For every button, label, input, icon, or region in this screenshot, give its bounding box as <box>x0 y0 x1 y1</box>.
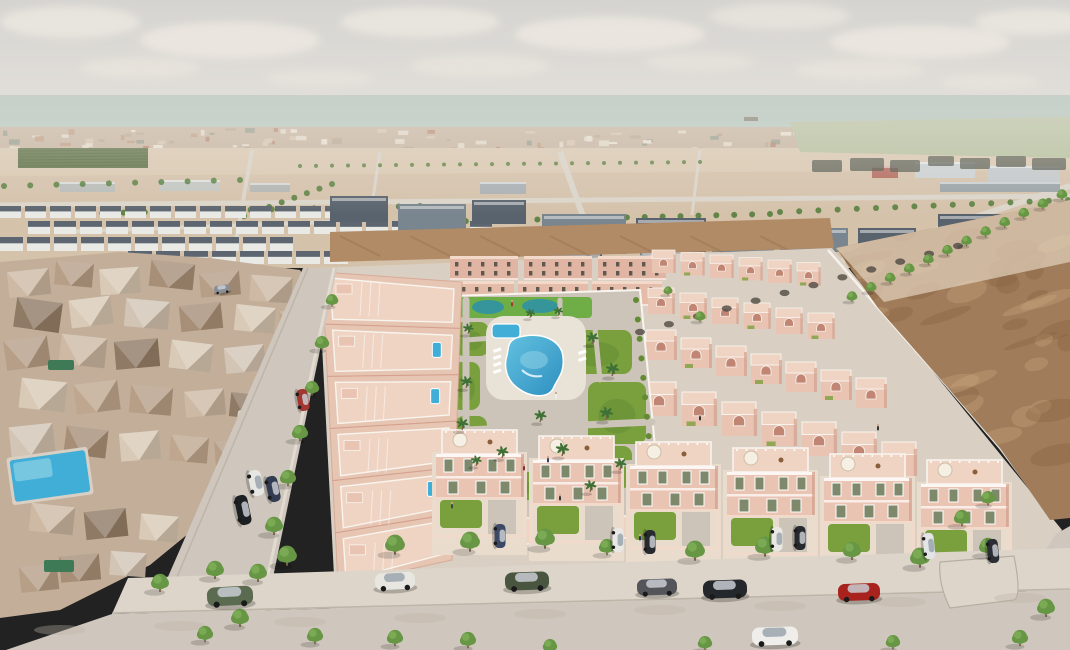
side-shadow <box>521 454 524 498</box>
person-head <box>451 502 453 504</box>
apartment-roof-line <box>544 216 624 219</box>
tree-highlight <box>462 633 470 641</box>
villa-unit <box>681 253 705 276</box>
villa-arch <box>747 267 755 274</box>
villa-side-shadow <box>789 265 791 283</box>
window <box>500 481 510 494</box>
tree-highlight <box>388 536 397 545</box>
window <box>464 459 473 472</box>
apartment-block <box>524 256 592 280</box>
townhouse-roof <box>28 221 50 227</box>
railing-post <box>890 455 892 457</box>
villa-unit <box>682 392 717 426</box>
car <box>749 626 800 650</box>
apartment-window <box>468 271 471 276</box>
window <box>888 505 898 518</box>
palm-shadow <box>596 421 609 425</box>
railing-post <box>959 461 961 463</box>
railing-post <box>968 461 970 463</box>
villa-arch <box>718 264 726 271</box>
car-glass <box>762 627 786 637</box>
side-shadow <box>1006 484 1009 528</box>
car-wheel <box>771 544 775 548</box>
apartment-window <box>568 271 571 276</box>
car-glass <box>384 573 405 583</box>
villa-roof <box>786 362 816 373</box>
rock <box>895 258 905 264</box>
villa-arch <box>693 406 704 416</box>
tree-highlight <box>956 511 964 519</box>
tree-shadow <box>842 301 855 305</box>
village-house <box>168 340 213 373</box>
tree-highlight <box>267 518 275 526</box>
village-house <box>129 384 173 416</box>
palm-shadow <box>551 316 560 319</box>
window <box>933 511 943 524</box>
townhouse-roof <box>81 237 104 243</box>
tree-highlight <box>758 538 767 547</box>
villa-side-shadow <box>768 308 771 329</box>
townhouse-roof <box>189 237 212 243</box>
townhouse-roof <box>106 221 128 227</box>
villa-side-shadow <box>709 344 712 368</box>
villa-arch <box>689 303 698 311</box>
townhouse-roof <box>184 221 206 227</box>
villa-unit <box>821 370 852 400</box>
villa-roof <box>856 378 886 389</box>
railing-post <box>793 449 795 451</box>
cornice <box>824 478 911 481</box>
villa-unit <box>646 330 677 360</box>
car <box>373 571 418 594</box>
apartment-window <box>507 271 510 276</box>
railing-post <box>900 455 902 457</box>
window <box>658 471 667 484</box>
green-roof <box>48 360 74 370</box>
cloud <box>515 17 705 51</box>
villa-yard <box>800 282 806 285</box>
tree-highlight <box>1020 209 1025 214</box>
tree-highlight <box>208 562 216 570</box>
person-head <box>555 392 557 394</box>
tree-highlight <box>538 530 547 539</box>
railing-post <box>871 455 873 457</box>
sky-layer <box>0 0 1070 104</box>
window <box>876 483 885 496</box>
villa-side-shadow <box>736 303 739 324</box>
villa-side-shadow <box>818 267 820 285</box>
stair-bulkhead <box>339 336 355 346</box>
cloud <box>940 74 1040 90</box>
railing-post <box>862 455 864 457</box>
villa-roof <box>682 392 716 404</box>
front-villa <box>723 448 818 573</box>
railing-post <box>997 461 999 463</box>
tree-highlight <box>700 637 707 644</box>
railing-post <box>590 437 592 439</box>
stair-bulkhead <box>349 545 365 555</box>
palm-shadow <box>457 388 468 392</box>
cornice <box>921 484 1008 487</box>
window <box>603 465 612 478</box>
roof-pool <box>431 389 440 404</box>
hedge <box>640 375 646 381</box>
railing-post <box>930 461 932 463</box>
apartment-window <box>629 271 632 276</box>
villa-side-shadow <box>672 293 675 314</box>
terrace-table <box>779 458 784 463</box>
villa-arch <box>660 259 668 266</box>
railing-post <box>552 437 554 439</box>
railing-post <box>599 437 601 439</box>
apartment-window <box>475 287 478 292</box>
villa-side-shadow <box>814 368 817 392</box>
playground-pad <box>522 299 558 313</box>
tree-highlight <box>982 227 987 232</box>
tree-shadow <box>995 226 1008 230</box>
car <box>492 523 506 549</box>
terrace-table <box>876 464 881 469</box>
villa-yard <box>687 421 696 426</box>
townhouse-roof <box>108 237 131 243</box>
railing-post <box>445 431 447 433</box>
villa-side-shadow <box>849 376 852 400</box>
apartment-window <box>507 262 510 267</box>
window <box>755 477 764 490</box>
villa-side-shadow <box>834 429 837 456</box>
rock <box>635 329 645 335</box>
side-shadow <box>715 466 718 510</box>
car-wheel <box>794 543 798 547</box>
car-wheel <box>494 541 498 545</box>
villa-yard <box>684 272 690 275</box>
townhouse-roof <box>240 251 264 257</box>
car-glass <box>713 580 736 590</box>
railing-post <box>696 443 698 445</box>
villa-unit <box>762 412 797 446</box>
railing-post <box>493 431 495 433</box>
cloud <box>265 70 375 86</box>
tree-shadow <box>1030 614 1051 620</box>
window <box>973 489 982 502</box>
terrace-table <box>585 446 590 451</box>
terrace-table <box>973 470 978 475</box>
asphalt-patch <box>514 609 566 619</box>
tree-highlight <box>913 549 922 558</box>
hedge <box>646 433 652 439</box>
asphalt-patch <box>154 621 206 631</box>
tree-shadow <box>938 254 951 258</box>
tree-highlight <box>665 287 669 291</box>
apartment-roof-line <box>860 230 914 233</box>
hedge <box>633 297 639 303</box>
villa-side-shadow <box>760 262 762 280</box>
tree-shadow <box>269 563 292 570</box>
tree-shadow <box>902 565 925 572</box>
tree-highlight <box>463 533 472 542</box>
car-wheel <box>644 533 648 537</box>
villa-arch <box>726 358 736 367</box>
railing-post <box>561 437 563 439</box>
person-head <box>559 494 561 496</box>
railing-post <box>512 431 514 433</box>
railing-post <box>833 455 835 457</box>
apartment-window <box>455 271 458 276</box>
apartment-window <box>494 271 497 276</box>
apartment-window <box>616 271 619 276</box>
villa-unit <box>751 354 782 384</box>
townhouse-roof <box>132 221 154 227</box>
railing-post <box>464 431 466 433</box>
palm-shadow <box>611 470 622 474</box>
apartment-window <box>488 287 491 292</box>
railing-post <box>474 431 476 433</box>
palm-shadow <box>583 344 594 348</box>
cloud <box>710 3 850 29</box>
tree-shadow <box>975 503 992 508</box>
cloud <box>80 58 200 78</box>
townhouse-roof <box>135 237 158 243</box>
tree-shadow <box>690 321 703 325</box>
villa-roof <box>762 412 796 424</box>
tree-shadow <box>957 245 970 249</box>
window <box>694 493 704 506</box>
railing-post <box>765 449 767 451</box>
cloud <box>0 6 140 38</box>
villa-roof <box>808 313 834 323</box>
village-house <box>179 302 223 332</box>
villa-yard <box>742 277 748 280</box>
townhouse-roof <box>296 251 320 257</box>
villa-arch <box>653 396 664 406</box>
apartment-window <box>629 262 632 267</box>
villa-roof <box>797 263 820 271</box>
railing-post <box>483 431 485 433</box>
villa-roof <box>680 293 706 303</box>
townhouse-roof <box>162 237 185 243</box>
apartment-window <box>603 262 606 267</box>
tree-highlight <box>1001 218 1006 223</box>
tree-shadow <box>1033 208 1046 212</box>
tree-highlight <box>963 237 968 242</box>
front-villa <box>626 442 721 567</box>
person <box>523 466 525 471</box>
window <box>735 477 744 490</box>
villa-side-shadow <box>800 313 803 334</box>
villa-roof <box>768 260 791 268</box>
tree-highlight <box>688 542 697 551</box>
tree-shadow <box>660 294 671 297</box>
car-wheel <box>612 531 616 535</box>
front-garden <box>440 500 482 528</box>
apartment-base-line <box>524 278 592 280</box>
tree-highlight <box>905 264 910 269</box>
window <box>642 493 652 506</box>
apartment-window <box>581 271 584 276</box>
railing-post <box>843 455 845 457</box>
cornice <box>436 454 523 457</box>
railing-post <box>949 461 951 463</box>
railing-post <box>542 437 544 439</box>
apartment-parapet <box>524 256 592 259</box>
tree-highlight <box>1039 199 1044 204</box>
tree-highlight <box>845 543 853 551</box>
tree-highlight <box>199 627 207 635</box>
villa-side-shadow <box>744 352 747 376</box>
window <box>448 481 458 494</box>
tree-highlight <box>389 631 397 639</box>
cornice <box>533 460 620 463</box>
apartment-window <box>494 262 497 267</box>
apartment-window <box>468 262 471 267</box>
villa-roof <box>652 250 675 258</box>
far-tree <box>534 216 540 222</box>
apartment-parapet <box>518 281 588 284</box>
village-house <box>19 378 68 413</box>
railing-post <box>852 455 854 457</box>
villa-side-shadow <box>754 409 757 436</box>
tree-highlight <box>601 540 609 548</box>
village-house <box>54 260 94 287</box>
village-house <box>234 304 276 334</box>
aerial-render-screenshot <box>0 0 1070 650</box>
villa-yard <box>755 380 763 384</box>
townhouse-roof <box>243 237 266 243</box>
asphalt-patch <box>394 613 446 623</box>
townhouse-roof <box>80 221 102 227</box>
lawn-shade <box>598 399 635 434</box>
railing-post <box>687 443 689 445</box>
villa-side-shadow <box>673 255 675 273</box>
hedge <box>637 336 643 342</box>
window <box>894 483 903 496</box>
window <box>797 477 806 490</box>
villa-arch <box>689 262 697 269</box>
front-villa <box>432 430 527 555</box>
window <box>700 471 709 484</box>
person <box>639 536 641 541</box>
tree-shadow <box>948 524 967 530</box>
railing-post <box>746 449 748 451</box>
villa-side-shadow <box>832 318 835 339</box>
tree-highlight <box>233 610 241 618</box>
asphalt-patch <box>34 625 86 635</box>
window <box>767 499 777 512</box>
villa-yard <box>825 396 833 400</box>
villa-roof <box>802 422 836 434</box>
string-course <box>727 494 814 497</box>
apartment-window <box>455 262 458 267</box>
apartment-window <box>542 271 545 276</box>
terrace-table <box>488 440 493 445</box>
terrace-umbrella <box>647 445 661 459</box>
townhouse-roof <box>27 237 50 243</box>
tree-shadow <box>881 282 894 286</box>
railing-post <box>881 455 883 457</box>
villa-arch <box>817 323 826 331</box>
railing-post <box>987 461 989 463</box>
playground-pad <box>472 300 504 314</box>
tree-shadow <box>452 549 475 556</box>
string-course <box>921 506 1008 509</box>
car-glass <box>777 533 783 545</box>
tree-highlight <box>886 274 891 279</box>
car <box>635 578 680 599</box>
village-house <box>249 275 293 304</box>
apartment-block <box>450 256 518 280</box>
villa-yard <box>811 336 818 339</box>
person-head <box>877 424 879 426</box>
railing-post <box>803 449 805 451</box>
villa-arch <box>866 390 876 399</box>
railing-post <box>774 449 776 451</box>
car <box>204 585 256 611</box>
townhouse-roof <box>0 237 23 243</box>
apartment-window <box>549 287 552 292</box>
terrace-umbrella <box>938 463 952 477</box>
palm-shadow <box>602 377 615 381</box>
tree-highlight <box>924 255 929 260</box>
tree-highlight <box>983 492 990 499</box>
tree-shadow <box>224 624 245 630</box>
car-wheel <box>494 527 498 531</box>
railing-post <box>978 461 980 463</box>
apartment-window <box>536 287 539 292</box>
villa-side-shadow <box>714 399 717 426</box>
car-wheel <box>644 547 648 551</box>
village-house <box>184 388 226 417</box>
villa-side-shadow <box>731 260 733 278</box>
tree-highlight <box>153 575 161 583</box>
apartment-window <box>529 271 532 276</box>
apartment-window <box>603 271 606 276</box>
person <box>559 496 561 501</box>
apartment-window <box>642 271 645 276</box>
villa-side-shadow <box>702 257 704 275</box>
railing-post <box>784 449 786 451</box>
hedge <box>638 355 644 361</box>
townhouse-roof <box>270 237 293 243</box>
tree-shadow <box>677 558 700 565</box>
railing-post <box>571 437 573 439</box>
villa-unit <box>744 303 771 329</box>
window <box>638 471 647 484</box>
window <box>670 493 680 506</box>
village-house <box>99 267 141 296</box>
villa-roof <box>646 330 676 341</box>
car <box>769 526 783 552</box>
tree-shadow <box>309 348 326 353</box>
tree-shadow <box>191 640 210 646</box>
village-house <box>84 508 129 540</box>
cloud <box>340 7 500 37</box>
villa-arch <box>785 318 794 326</box>
palm-shadow <box>460 334 470 337</box>
villa-roof <box>776 308 802 318</box>
car <box>836 583 883 606</box>
railing-post <box>649 443 651 445</box>
roof-pool <box>432 342 441 357</box>
apartment-window <box>462 287 465 292</box>
person-head <box>699 414 701 416</box>
villa-roof <box>722 402 756 414</box>
window <box>561 465 570 478</box>
window <box>864 505 874 518</box>
villa-unit <box>722 402 757 436</box>
string-course <box>824 500 911 503</box>
haze <box>0 95 1070 215</box>
cornice <box>630 466 717 469</box>
